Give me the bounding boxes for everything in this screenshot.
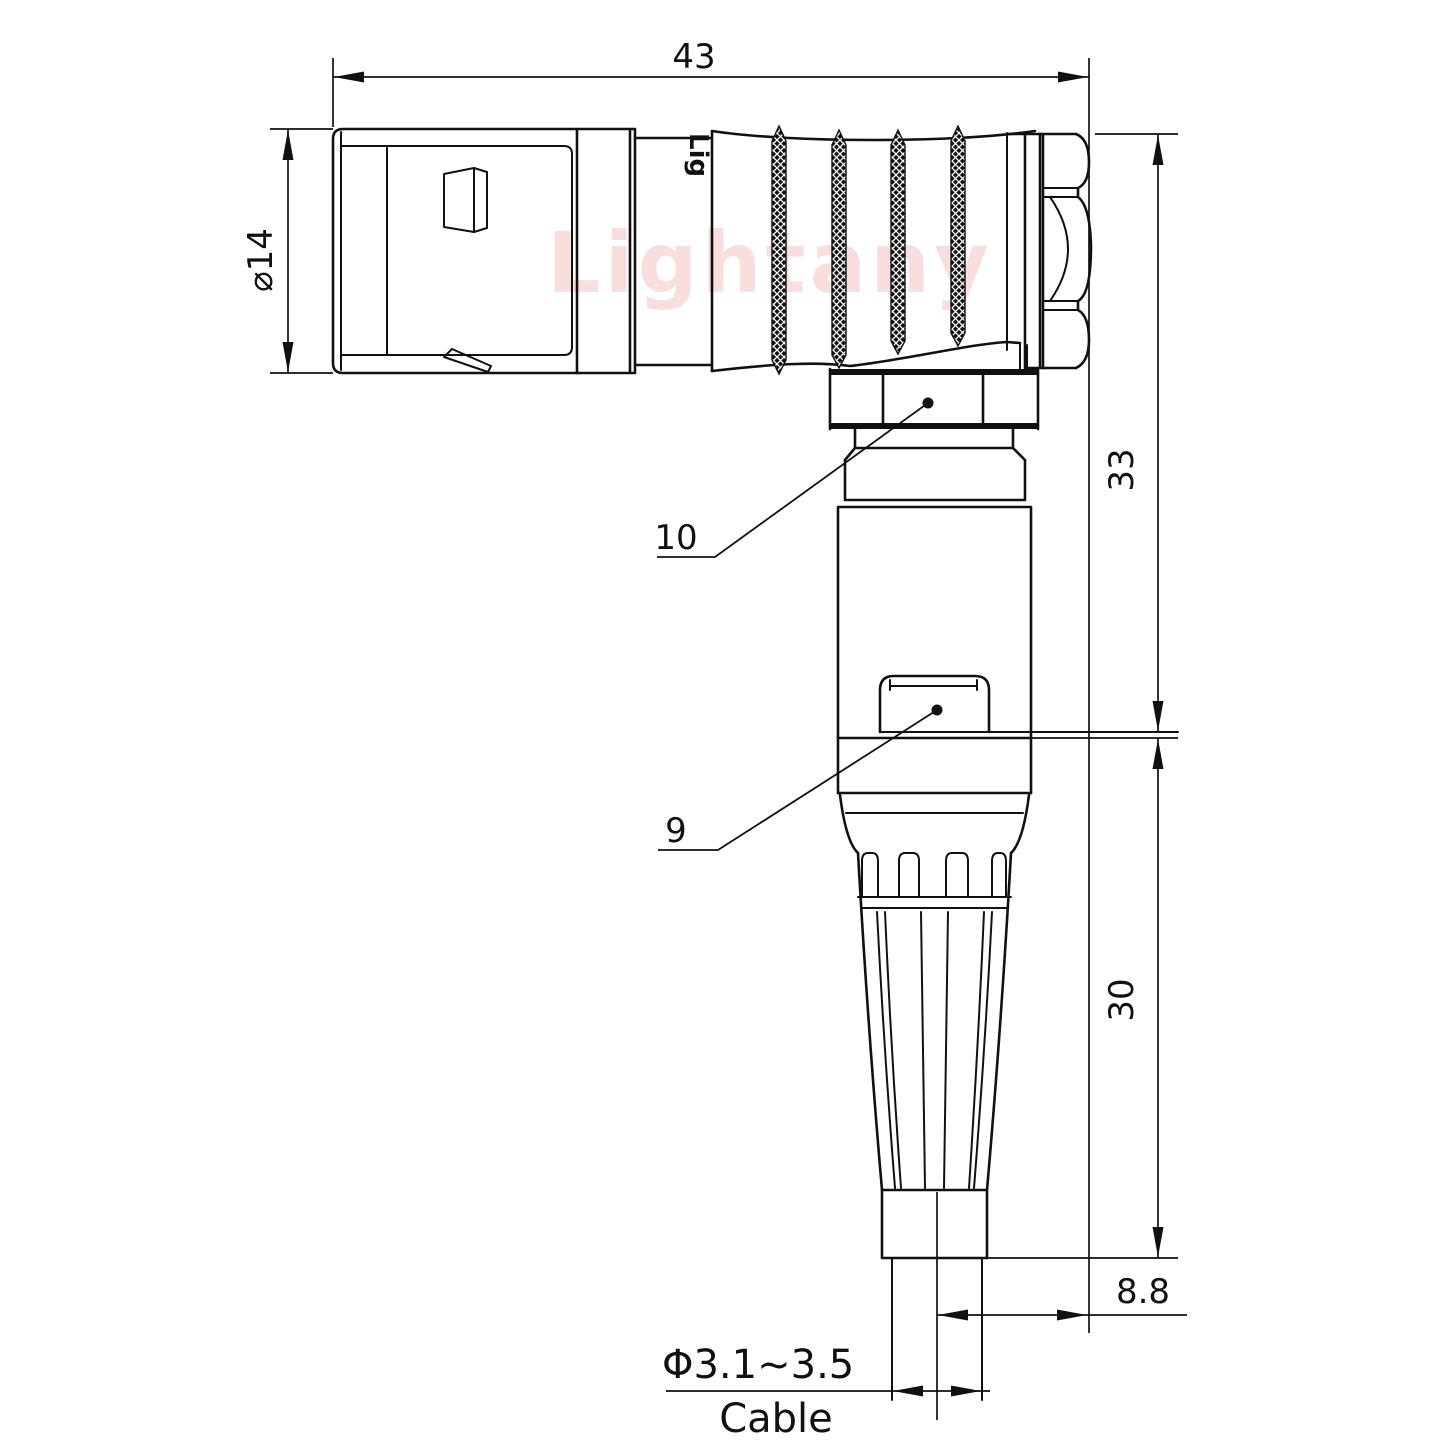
coupling-nut [830, 369, 1038, 429]
dim-cable-diameter: Φ3.1~3.5 Cable [662, 1342, 990, 1440]
upper-body [845, 429, 1025, 500]
dim-body-diameter-value: ⌀14 [241, 228, 281, 292]
dim-height-lower: 30 [987, 738, 1178, 1258]
connector-dimension-drawing: Lightany 43 ⌀14 33 [0, 0, 1440, 1440]
part-label-coupling-nut: 10 [654, 398, 933, 559]
dim-overall-length-value: 43 [672, 37, 715, 77]
clip [880, 676, 989, 732]
connector-drawing: Lig [333, 126, 1178, 1400]
watermark-text: Lightany [547, 214, 993, 312]
latch-key [444, 168, 487, 232]
brand-mark-text: Lig [683, 133, 713, 177]
dim-height-upper: 33 [1095, 134, 1178, 732]
bottom-notch [444, 349, 491, 372]
dim-height-lower-value: 30 [1102, 978, 1142, 1021]
dim-body-diameter: ⌀14 [241, 129, 333, 373]
body-cylinder [838, 507, 1178, 793]
cable-collar [882, 1190, 987, 1258]
front-sleeve [333, 129, 577, 373]
dim-cable-diameter-value: Φ3.1~3.5 [662, 1342, 854, 1388]
strain-relief [840, 795, 1029, 1190]
dim-height-upper-value: 33 [1102, 448, 1142, 491]
part-label-coupling-nut-value: 10 [654, 518, 697, 558]
cable-label: Cable [719, 1396, 833, 1440]
end-cap [1040, 134, 1091, 368]
part-label-clip: 9 [658, 705, 943, 852]
dim-axis-offset: 8.8 [937, 1192, 1187, 1420]
technical-drawing-page: Lightany 43 ⌀14 33 [0, 0, 1440, 1440]
dim-axis-offset-value: 8.8 [1116, 1272, 1170, 1312]
part-label-clip-value: 9 [665, 811, 687, 851]
